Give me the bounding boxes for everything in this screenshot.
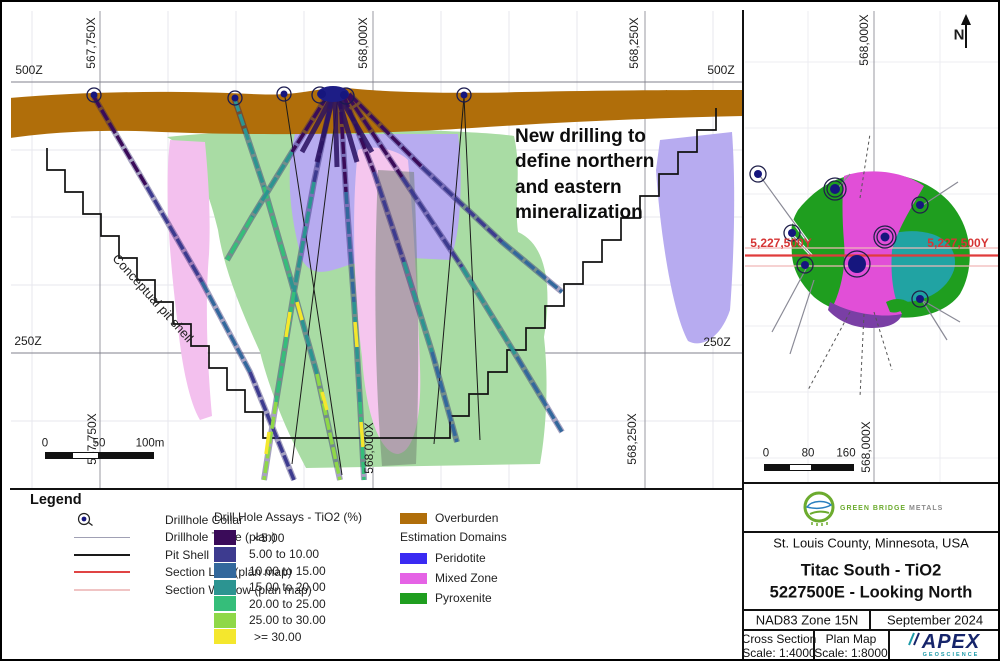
titleblock-line-1 — [742, 531, 1000, 533]
cs-scale-50: 50 — [93, 438, 106, 450]
assay-label: >= 30.00 — [254, 630, 301, 644]
assay-item: 25.00 to 30.00 — [214, 613, 362, 628]
assay-label: 25.00 to 30.00 — [249, 613, 326, 627]
pm-scale-value: Scale: 1:8000 — [814, 646, 887, 660]
titleblock-line-3 — [742, 629, 1000, 631]
legend-title: Legend — [30, 492, 82, 508]
cs-scale-100: 100m — [136, 438, 165, 450]
assay-item: 5.00 to 10.00 — [214, 547, 362, 562]
assay-swatch — [214, 629, 236, 644]
overburden-swatch — [400, 513, 427, 524]
apex-sub-text: GEOSCIENCE — [907, 652, 995, 658]
annotation-line: define northern — [515, 149, 685, 174]
pm-scalebar-seg — [812, 464, 854, 471]
section-line-swatch — [74, 571, 130, 573]
plan-northing-label-right: 5,227,500Y — [927, 237, 988, 249]
elev-label-250-left: 250Z — [14, 335, 41, 347]
pm-scale-80: 80 — [802, 448, 815, 460]
plan-axis-label-bottom: 568,000X — [860, 421, 872, 472]
elev-label-250-right: 250Z — [703, 336, 730, 348]
titleblock-vdiv-2 — [813, 629, 815, 661]
cs-scalebar-seg — [72, 452, 99, 459]
apex-name: APEX — [922, 631, 980, 653]
cs-scale-value: Scale: 1:4000 — [742, 646, 815, 660]
apex-logo-text: APEX — [907, 632, 995, 652]
cs-scale-0: 0 — [42, 438, 48, 450]
map-title-line1: Titac South - TiO2 — [801, 562, 942, 581]
pyroxenite-swatch — [400, 593, 427, 604]
apex-logo: APEX GEOSCIENCE — [907, 632, 995, 658]
assay-label: 10.00 to 15.00 — [249, 564, 326, 578]
legend-assays: Drill Hole Assays - TiO2 (%) <5.00 5.00 … — [214, 510, 362, 646]
legend-divider — [10, 488, 744, 490]
pm-scale-160: 160 — [836, 448, 855, 460]
assay-label: 15.00 to 20.00 — [249, 580, 326, 594]
legend-item-mixed-zone: Mixed Zone — [400, 570, 507, 586]
legend-domains: Overburden Estimation Domains Peridotite… — [400, 510, 507, 610]
apex-slashes-icon — [907, 632, 921, 646]
assay-item: 15.00 to 20.00 — [214, 580, 362, 595]
axis-label-bottom-2: 568,000X — [363, 422, 375, 473]
assay-swatch — [214, 580, 236, 595]
axis-label-top-1: 567,750X — [85, 17, 97, 68]
company-name: GREEN BRIDGE METALS — [840, 505, 943, 512]
green-bridge-logo-icon — [802, 490, 838, 528]
legend-label: Peridotite — [435, 551, 486, 565]
annotation-line: and eastern — [515, 175, 685, 200]
drillhole-trace-swatch — [74, 537, 130, 539]
plan-axis-label-top: 568,000X — [858, 14, 870, 65]
date-text: September 2024 — [887, 613, 983, 628]
pm-scale-label: Plan Map — [826, 632, 877, 646]
cs-scale-label: Cross Section — [742, 632, 817, 646]
assay-swatch — [214, 563, 236, 578]
assay-legend-title: Drill Hole Assays - TiO2 (%) — [214, 510, 362, 524]
section-window-swatch — [74, 589, 130, 591]
legend-label: Pit Shell — [165, 548, 209, 562]
annotation-text: New drilling to define northern and east… — [515, 124, 685, 225]
legend-item-overburden: Overburden — [400, 510, 507, 526]
elev-label-500-right: 500Z — [707, 64, 734, 76]
domains-title: Estimation Domains — [400, 530, 507, 544]
figure-page: 567,750X 568,000X 568,250X 567,750X 568,… — [0, 0, 1000, 661]
gray-band — [375, 170, 418, 466]
panel-divider-vertical — [742, 10, 744, 661]
legend-label: Overburden — [435, 511, 498, 525]
assay-item: >= 30.00 — [214, 629, 362, 644]
assay-item: <5.00 — [214, 530, 362, 545]
assay-swatch — [214, 530, 236, 545]
pm-scalebar-seg — [764, 464, 789, 471]
legend-label: Mixed Zone — [435, 571, 498, 585]
north-label: N — [954, 28, 965, 43]
annotation-line: mineralization — [515, 200, 685, 225]
assay-swatch — [214, 596, 236, 611]
assay-item: 10.00 to 15.00 — [214, 563, 362, 578]
elev-label-500-left: 500Z — [15, 64, 42, 76]
company-name-first: GREEN BRIDGE — [840, 505, 906, 512]
peridotite-swatch — [400, 553, 427, 564]
cs-scalebar-seg — [45, 452, 72, 459]
pm-scalebar-seg — [789, 464, 812, 471]
titleblock-top-border — [742, 482, 1000, 484]
legend-item-peridotite: Peridotite — [400, 550, 507, 566]
mixed-zone-swatch — [400, 573, 427, 584]
legend-item-pyroxenite: Pyroxenite — [400, 590, 507, 606]
legend-label: Pyroxenite — [435, 591, 492, 605]
assay-swatch — [214, 613, 236, 628]
map-title-line2: 5227500E - Looking North — [770, 584, 973, 603]
plan-northing-label-left: 5,227,500Y — [750, 237, 811, 249]
assay-swatch — [214, 547, 236, 562]
annotation-line: New drilling to — [515, 124, 685, 149]
cs-scalebar-seg — [99, 452, 154, 459]
assay-label: 5.00 to 10.00 — [249, 547, 319, 561]
location-text: St. Louis County, Minnesota, USA — [773, 536, 969, 551]
axis-label-top-2: 568,000X — [357, 17, 369, 68]
axis-label-bottom-3: 568,250X — [626, 413, 638, 464]
company-logo: GREEN BRIDGE METALS — [802, 490, 942, 528]
titleblock-line-2 — [742, 609, 1000, 611]
assay-item: 20.00 to 25.00 — [214, 596, 362, 611]
pm-scale-0: 0 — [763, 448, 769, 460]
company-name-last: METALS — [906, 505, 943, 512]
axis-label-top-3: 568,250X — [628, 17, 640, 68]
assay-label: 20.00 to 25.00 — [249, 597, 326, 611]
titleblock-vdiv-1 — [869, 609, 871, 630]
mixed-zone-left — [168, 140, 212, 420]
datum-text: NAD83 Zone 15N — [756, 613, 859, 628]
titleblock-vdiv-3 — [888, 629, 890, 661]
assay-label: <5.00 — [254, 531, 284, 545]
pit-shell-swatch — [74, 554, 130, 557]
